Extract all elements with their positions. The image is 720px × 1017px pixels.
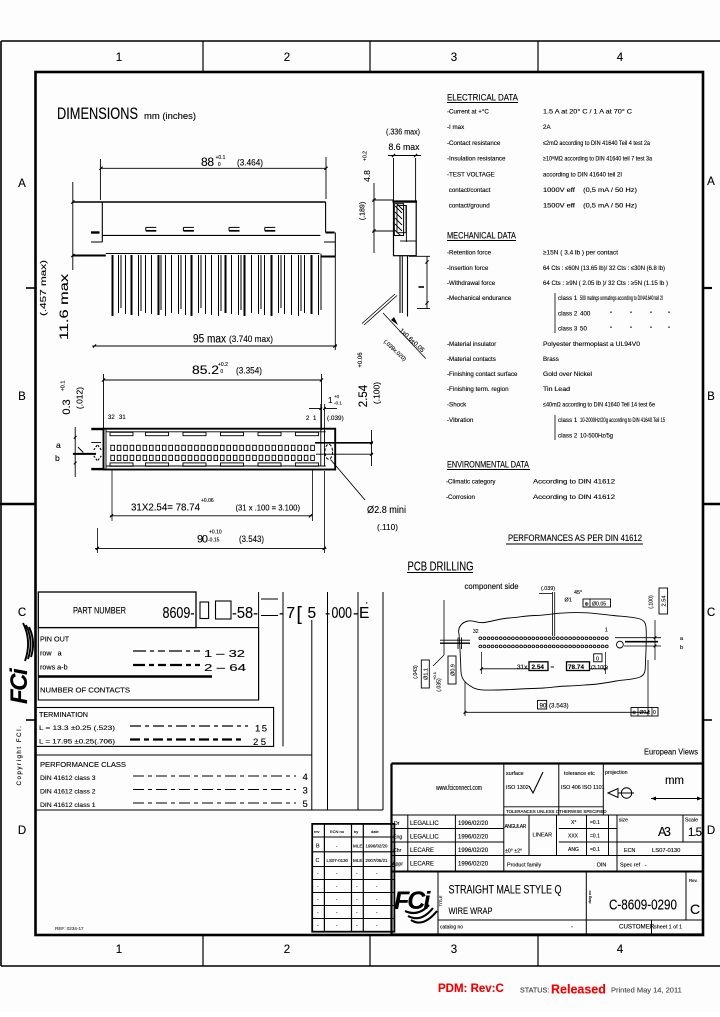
svg-text:=0.1: =0.1 bbox=[590, 820, 600, 826]
svg-text:mm (inches): mm (inches) bbox=[144, 111, 196, 122]
svg-text:b: b bbox=[55, 453, 60, 463]
svg-text:(.189): (.189) bbox=[360, 202, 367, 220]
svg-text:row a: row a bbox=[40, 649, 62, 658]
svg-text:5: 5 bbox=[308, 605, 317, 622]
svg-text:ECN no: ECN no bbox=[330, 829, 345, 834]
svg-text:(.035): (.035) bbox=[437, 678, 443, 692]
svg-text:C: C bbox=[690, 901, 700, 917]
svg-text:www.fciconnect.com: www.fciconnect.com bbox=[435, 785, 482, 792]
svg-text:component side: component side bbox=[465, 582, 520, 591]
svg-text:According to DIN 41612: According to DIN 41612 bbox=[533, 479, 616, 486]
svg-text:≤2mΩ according to DIN 41640 Te: ≤2mΩ according to DIN 41640 Teil 4 test … bbox=[543, 140, 650, 147]
svg-text:=: = bbox=[551, 664, 555, 671]
svg-text:PERFORMANCE CLASS: PERFORMANCE CLASS bbox=[40, 760, 126, 769]
svg-text:LEGALLIC: LEGALLIC bbox=[410, 821, 439, 827]
svg-text:(.039): (.039) bbox=[541, 586, 555, 592]
svg-text:class 1: class 1 bbox=[558, 295, 578, 302]
svg-text:-Contact resistance: -Contact resistance bbox=[447, 140, 501, 147]
svg-text:surface: surface bbox=[506, 771, 524, 777]
svg-text:LECARE: LECARE bbox=[410, 848, 434, 854]
svg-text:Copyright FCI.: Copyright FCI. bbox=[16, 725, 23, 786]
svg-text:C: C bbox=[707, 607, 715, 619]
svg-text:(3.543): (3.543) bbox=[239, 534, 264, 544]
svg-text:-0.1: -0.1 bbox=[334, 401, 342, 406]
svg-text:4: 4 bbox=[303, 772, 308, 783]
svg-text:date: date bbox=[371, 829, 380, 834]
svg-text:B: B bbox=[707, 391, 715, 403]
svg-text:-Finishing term. region: -Finishing term. region bbox=[447, 386, 509, 393]
svg-text:WIRE WRAP: WIRE WRAP bbox=[449, 906, 493, 917]
svg-text:1.5: 1.5 bbox=[688, 827, 702, 839]
svg-text:MLE: MLE bbox=[353, 858, 362, 863]
svg-text:+0.2: +0.2 bbox=[218, 362, 228, 368]
svg-text:Gold over Nickel: Gold over Nickel bbox=[543, 371, 592, 378]
svg-text:-Insulation resistance: -Insulation resistance bbox=[447, 156, 506, 163]
svg-text:4: 4 bbox=[617, 944, 624, 956]
svg-text:NUMBER OF CONTACTS: NUMBER OF CONTACTS bbox=[40, 686, 130, 695]
svg-text:64 Cts : ≥9N ( 2.05 lb )/ 32 C: 64 Cts : ≥9N ( 2.05 lb )/ 32 Cts : ≥5N (… bbox=[543, 280, 668, 287]
svg-text:D: D bbox=[18, 825, 26, 837]
svg-text:ECN: ECN bbox=[624, 848, 635, 854]
svg-text:C-8609-0290: C-8609-0290 bbox=[609, 898, 677, 914]
svg-text:90: 90 bbox=[197, 534, 208, 546]
svg-text:according to DIN 41640 teil 2I: according to DIN 41640 teil 2I bbox=[543, 172, 622, 179]
svg-text:+0: +0 bbox=[334, 394, 340, 399]
svg-text:64 Cts : ≤60N (13.65 lb)/ 32 C: 64 Cts : ≤60N (13.65 lb)/ 32 Cts : ≤30N … bbox=[543, 265, 665, 272]
svg-text:3: 3 bbox=[303, 786, 308, 797]
svg-text:sheet 1 of 1: sheet 1 of 1 bbox=[654, 925, 682, 931]
svg-text:": " bbox=[610, 312, 612, 318]
svg-text:PDM: Rev:C: PDM: Rev:C bbox=[438, 983, 504, 995]
svg-text:-0.15: -0.15 bbox=[208, 538, 220, 544]
svg-text:-Insertion force: -Insertion force bbox=[447, 265, 489, 272]
svg-text:REF: 0234-17: REF: 0234-17 bbox=[55, 926, 84, 931]
svg-text:ANG: ANG bbox=[568, 847, 579, 853]
svg-text:95 max: 95 max bbox=[193, 334, 226, 346]
svg-text:b: b bbox=[680, 645, 683, 651]
svg-text:50: 50 bbox=[580, 326, 587, 333]
svg-text:10-2000Hz/20g according to DIN: 10-2000Hz/20g according to DIN 41640 Tei… bbox=[580, 417, 665, 424]
svg-text:2 – 64: 2 – 64 bbox=[204, 663, 247, 674]
svg-text:(.110): (.110) bbox=[377, 522, 398, 532]
svg-text:=0.1: =0.1 bbox=[590, 834, 600, 840]
svg-text:(.336 max): (.336 max) bbox=[386, 128, 420, 137]
svg-text:(.043): (.043) bbox=[413, 665, 419, 679]
svg-text:": " bbox=[630, 312, 632, 318]
svg-text:PERFORMANCES AS PER DIN 41612: PERFORMANCES AS PER DIN 41612 bbox=[508, 533, 642, 544]
svg-text:Ø0.1: Ø0.1 bbox=[640, 710, 651, 716]
svg-text:According to DIN 41612: According to DIN 41612 bbox=[533, 494, 616, 501]
svg-text:-: - bbox=[571, 925, 573, 931]
svg-text:CUSTOMER: CUSTOMER bbox=[619, 924, 655, 931]
svg-text:LECARE: LECARE bbox=[410, 862, 434, 868]
svg-text:": " bbox=[650, 312, 652, 318]
svg-text:5: 5 bbox=[303, 799, 308, 810]
svg-text:-Material contacts: -Material contacts bbox=[447, 356, 496, 363]
svg-text:catalog no: catalog no bbox=[440, 925, 463, 931]
svg-text:D: D bbox=[707, 825, 715, 837]
svg-text:B: B bbox=[18, 391, 26, 403]
svg-text:2.54: 2.54 bbox=[662, 596, 668, 607]
svg-text:±0° ±2°: ±0° ±2° bbox=[505, 849, 522, 855]
svg-text:DIN 41612 class 3: DIN 41612 class 3 bbox=[40, 775, 96, 782]
svg-text:TITLE: TITLE bbox=[438, 895, 443, 906]
svg-text:B: B bbox=[316, 844, 320, 850]
svg-text:32: 32 bbox=[473, 629, 479, 635]
svg-text:(3.464): (3.464) bbox=[237, 158, 263, 168]
svg-text:MLE: MLE bbox=[353, 844, 362, 849]
svg-text:1996/02/20: 1996/02/20 bbox=[366, 844, 389, 849]
svg-text:Ø0.9: Ø0.9 bbox=[450, 664, 456, 676]
svg-text:DIN 41612 class 2: DIN 41612 class 2 bbox=[40, 789, 96, 796]
svg-text:0: 0 bbox=[596, 657, 599, 663]
svg-text:11.6 max: 11.6 max bbox=[57, 274, 71, 340]
svg-text:contact/contact: contact/contact bbox=[447, 187, 491, 194]
svg-text:contact/ground: contact/ground bbox=[447, 203, 490, 210]
svg-text:ENVIRONMENTAL DATA: ENVIRONMENTAL DATA bbox=[447, 460, 530, 471]
svg-text:LS07-0130: LS07-0130 bbox=[652, 848, 680, 854]
svg-text:+0.2: +0.2 bbox=[363, 151, 369, 161]
svg-text:class 1: class 1 bbox=[558, 417, 578, 424]
svg-text:(.100): (.100) bbox=[372, 382, 382, 404]
svg-text:Ø1: Ø1 bbox=[565, 598, 572, 604]
svg-text:Spec ref -: Spec ref - bbox=[620, 863, 647, 869]
svg-text:C: C bbox=[316, 858, 320, 864]
svg-text:by: by bbox=[354, 829, 358, 834]
svg-text:+0.1: +0.1 bbox=[61, 381, 67, 392]
svg-text:ANGULAR: ANGULAR bbox=[505, 824, 527, 830]
svg-text:1 – 32: 1 – 32 bbox=[204, 649, 246, 660]
svg-text:projection: projection bbox=[605, 770, 628, 776]
svg-text:STATUS:: STATUS: bbox=[520, 986, 549, 995]
svg-text:2.54: 2.54 bbox=[358, 384, 370, 407]
svg-text:-Corrosion: -Corrosion bbox=[446, 494, 475, 501]
svg-text:Polyester thermoplast a UL94V0: Polyester thermoplast a UL94V0 bbox=[543, 341, 641, 348]
svg-text:Ø2.8 mini: Ø2.8 mini bbox=[367, 504, 406, 516]
svg-text:ISO 406 ISO 1101: ISO 406 ISO 1101 bbox=[561, 785, 605, 791]
svg-text:0: 0 bbox=[219, 369, 223, 375]
svg-text:+0.06: +0.06 bbox=[201, 498, 214, 504]
svg-text:PCB DRILLING: PCB DRILLING bbox=[408, 559, 474, 574]
svg-text:≥15N ( 3.4 lb ) per contact: ≥15N ( 3.4 lb ) per contact bbox=[543, 250, 618, 257]
svg-text:45°: 45° bbox=[574, 590, 582, 596]
svg-text:-Current at +°C: -Current at +°C bbox=[447, 109, 489, 116]
svg-text:(.039): (.039) bbox=[327, 415, 344, 422]
svg-text:FCi: FCi bbox=[6, 667, 33, 704]
svg-text:E: E bbox=[359, 605, 369, 622]
svg-text:Tin Lead: Tin Lead bbox=[543, 386, 571, 393]
svg-text:DIN 41612 class 1: DIN 41612 class 1 bbox=[40, 802, 96, 809]
svg-text:PIN OUT: PIN OUT bbox=[40, 635, 70, 644]
svg-text:8609-: 8609- bbox=[163, 605, 195, 622]
svg-text:(.100): (.100) bbox=[649, 595, 655, 609]
svg-text:1000V eff (0,5 mA / 50 Hz): 1000V eff (0,5 mA / 50 Hz) bbox=[543, 187, 637, 194]
svg-text:XXX: XXX bbox=[568, 834, 579, 840]
svg-text:Rev.: Rev. bbox=[689, 878, 698, 883]
svg-text:90: 90 bbox=[540, 703, 547, 710]
svg-text:Released: Released bbox=[551, 983, 606, 997]
svg-text:1996/02/20: 1996/02/20 bbox=[458, 848, 489, 854]
svg-text:": " bbox=[610, 327, 612, 333]
svg-text:2.54: 2.54 bbox=[532, 664, 545, 671]
svg-text:0: 0 bbox=[653, 710, 656, 716]
svg-text:STRAIGHT MALE STYLE Q: STRAIGHT MALE STYLE Q bbox=[449, 885, 562, 897]
svg-text:≤40mΩ according to DIN 41640 T: ≤40mΩ according to DIN 41640 Teil 14 tes… bbox=[543, 402, 655, 409]
svg-text:A: A bbox=[707, 176, 715, 188]
svg-text:-Shock: -Shock bbox=[447, 402, 467, 409]
svg-text:1.5 A at 20° C / 1 A at 70° C: 1.5 A at 20° C / 1 A at 70° C bbox=[543, 109, 633, 116]
svg-text:000: 000 bbox=[332, 605, 353, 622]
svg-text:-Finishing contact surface: -Finishing contact surface bbox=[447, 371, 518, 378]
svg-text:(3.740 max): (3.740 max) bbox=[229, 334, 273, 344]
svg-text:4.8: 4.8 bbox=[362, 170, 372, 182]
svg-text:A3: A3 bbox=[658, 825, 671, 839]
svg-text:class 2: class 2 bbox=[558, 433, 578, 440]
svg-text:1: 1 bbox=[116, 944, 122, 956]
svg-text:500 matings unmatings accordin: 500 matings unmatings according to DIN41… bbox=[580, 295, 663, 302]
svg-text:(31 x .100 = 3.100): (31 x .100 = 3.100) bbox=[236, 504, 301, 513]
svg-text:7: 7 bbox=[287, 605, 296, 622]
svg-text:-Withdrawal force: -Withdrawal force bbox=[447, 280, 496, 287]
svg-text:L = 13.3 ±0.25 (.523): L = 13.3 ±0.25 (.523) bbox=[39, 725, 115, 732]
svg-text:31: 31 bbox=[119, 415, 126, 421]
svg-text:-Retention force: -Retention force bbox=[447, 250, 492, 257]
svg-text:1996/02/20: 1996/02/20 bbox=[458, 835, 489, 841]
svg-text:4: 4 bbox=[617, 52, 624, 64]
svg-text:TERMINATION: TERMINATION bbox=[39, 710, 88, 719]
svg-text:class 2: class 2 bbox=[558, 311, 578, 318]
svg-text:": " bbox=[630, 327, 632, 333]
svg-text:rev: rev bbox=[314, 829, 320, 834]
svg-text:": " bbox=[650, 327, 652, 333]
svg-text:32: 32 bbox=[108, 415, 115, 421]
svg-text:85.2: 85.2 bbox=[192, 363, 219, 377]
svg-text:DIN: DIN bbox=[597, 863, 606, 869]
svg-text:31X2.54= 78.74: 31X2.54= 78.74 bbox=[131, 502, 200, 514]
svg-text:size: size bbox=[619, 818, 628, 824]
svg-text:": " bbox=[668, 327, 670, 333]
svg-text:a: a bbox=[56, 440, 61, 450]
svg-text:Scale: Scale bbox=[685, 818, 698, 824]
svg-text:mm: mm bbox=[665, 775, 684, 787]
svg-text:-I max: -I max bbox=[447, 124, 465, 131]
svg-text:Product family: Product family bbox=[507, 863, 541, 869]
svg-text:L = 17.95 ±0.25(.706): L = 17.95 ±0.25(.706) bbox=[39, 739, 115, 746]
svg-text:1: 1 bbox=[328, 396, 333, 405]
svg-text:dwg no: dwg no bbox=[587, 890, 592, 904]
svg-text:Ø1.1: Ø1.1 bbox=[424, 668, 430, 680]
svg-text:MECHANICAL DATA: MECHANICAL DATA bbox=[447, 231, 517, 242]
svg-text:ISO 1302: ISO 1302 bbox=[506, 785, 529, 791]
svg-text:-Mechanical endurance: -Mechanical endurance bbox=[447, 295, 512, 302]
svg-text:-Vibration: -Vibration bbox=[447, 417, 474, 424]
svg-text:-: - bbox=[353, 605, 358, 622]
svg-text:": " bbox=[668, 312, 670, 318]
svg-text:ELECTRICAL DATA: ELECTRICAL DATA bbox=[447, 93, 519, 104]
svg-text:31x: 31x bbox=[517, 664, 528, 671]
svg-text:≥10⁵MΩ according to DIN 41640: ≥10⁵MΩ according to DIN 41640 teil 7 tes… bbox=[543, 156, 652, 163]
svg-text:0.3: 0.3 bbox=[61, 399, 73, 414]
svg-text:3: 3 bbox=[451, 944, 457, 956]
svg-text:78.74: 78.74 bbox=[568, 664, 584, 671]
svg-text:1: 1 bbox=[116, 52, 122, 64]
svg-text:+0.10: +0.10 bbox=[209, 530, 222, 536]
svg-text:(3.543): (3.543) bbox=[549, 703, 569, 710]
svg-text:LINEAR: LINEAR bbox=[533, 833, 553, 839]
svg-text:C: C bbox=[18, 607, 26, 619]
svg-text:10-500Hz/5g: 10-500Hz/5g bbox=[580, 433, 614, 440]
svg-text:2A: 2A bbox=[543, 124, 551, 131]
svg-text:Ø0.05: Ø0.05 bbox=[592, 602, 606, 608]
svg-text:(3.354): (3.354) bbox=[236, 366, 262, 376]
svg-text:(.457 max): (.457 max) bbox=[38, 260, 48, 316]
svg-text:class 3: class 3 bbox=[558, 326, 578, 333]
svg-text:1500V eff (0,5 mA / 50 Hz): 1500V eff (0,5 mA / 50 Hz) bbox=[543, 203, 637, 210]
svg-text:FCi: FCi bbox=[394, 887, 431, 915]
svg-text:1: 1 bbox=[605, 628, 608, 634]
svg-text:Printed May 14, 2011: Printed May 14, 2011 bbox=[611, 986, 682, 995]
svg-text:2: 2 bbox=[284, 944, 290, 956]
svg-text:400: 400 bbox=[580, 311, 591, 318]
svg-text:0: 0 bbox=[217, 162, 221, 168]
svg-text:+0.1: +0.1 bbox=[216, 155, 226, 161]
svg-text:⊕: ⊕ bbox=[585, 602, 589, 608]
svg-text:1996/02/20: 1996/02/20 bbox=[458, 862, 489, 868]
svg-text:=0.1: =0.1 bbox=[590, 847, 600, 853]
svg-text:LS07-0130: LS07-0130 bbox=[327, 858, 349, 863]
svg-text:-TEST VOLTAGE: -TEST VOLTAGE bbox=[447, 172, 495, 179]
svg-text:-Climatic category: -Climatic category bbox=[446, 479, 496, 486]
svg-text:2007/05/21: 2007/05/21 bbox=[366, 858, 389, 863]
svg-text:15: 15 bbox=[255, 724, 267, 735]
svg-text:tolerance etc: tolerance etc bbox=[564, 771, 595, 777]
svg-text:(.012): (.012) bbox=[75, 387, 85, 409]
svg-text:3: 3 bbox=[451, 52, 457, 64]
svg-text:PART NUMBER: PART NUMBER bbox=[73, 606, 126, 617]
svg-text:8.6 max: 8.6 max bbox=[389, 142, 420, 152]
svg-text:TOLERANCES UNLESS OTHERWISE SP: TOLERANCES UNLESS OTHERWISE SPECIFIED bbox=[506, 809, 607, 814]
svg-text:LEGALLIC: LEGALLIC bbox=[410, 835, 439, 841]
svg-text:DIMENSIONS: DIMENSIONS bbox=[57, 105, 138, 123]
svg-text:2: 2 bbox=[284, 52, 290, 64]
svg-text:A: A bbox=[18, 178, 26, 190]
svg-text:-Material insulator: -Material insulator bbox=[447, 341, 496, 348]
svg-text:Brass: Brass bbox=[543, 356, 559, 363]
svg-text:+0.06: +0.06 bbox=[358, 352, 364, 368]
svg-text:88: 88 bbox=[201, 155, 214, 169]
svg-text:X°: X° bbox=[571, 820, 576, 826]
svg-text:[: [ bbox=[297, 604, 303, 625]
svg-text:⊕: ⊕ bbox=[632, 710, 636, 716]
svg-text:1996/02/20: 1996/02/20 bbox=[458, 821, 489, 827]
svg-text:rows a-b: rows a-b bbox=[40, 663, 68, 672]
svg-text:European Views: European Views bbox=[644, 747, 698, 757]
svg-text:-58-: -58- bbox=[232, 605, 258, 622]
